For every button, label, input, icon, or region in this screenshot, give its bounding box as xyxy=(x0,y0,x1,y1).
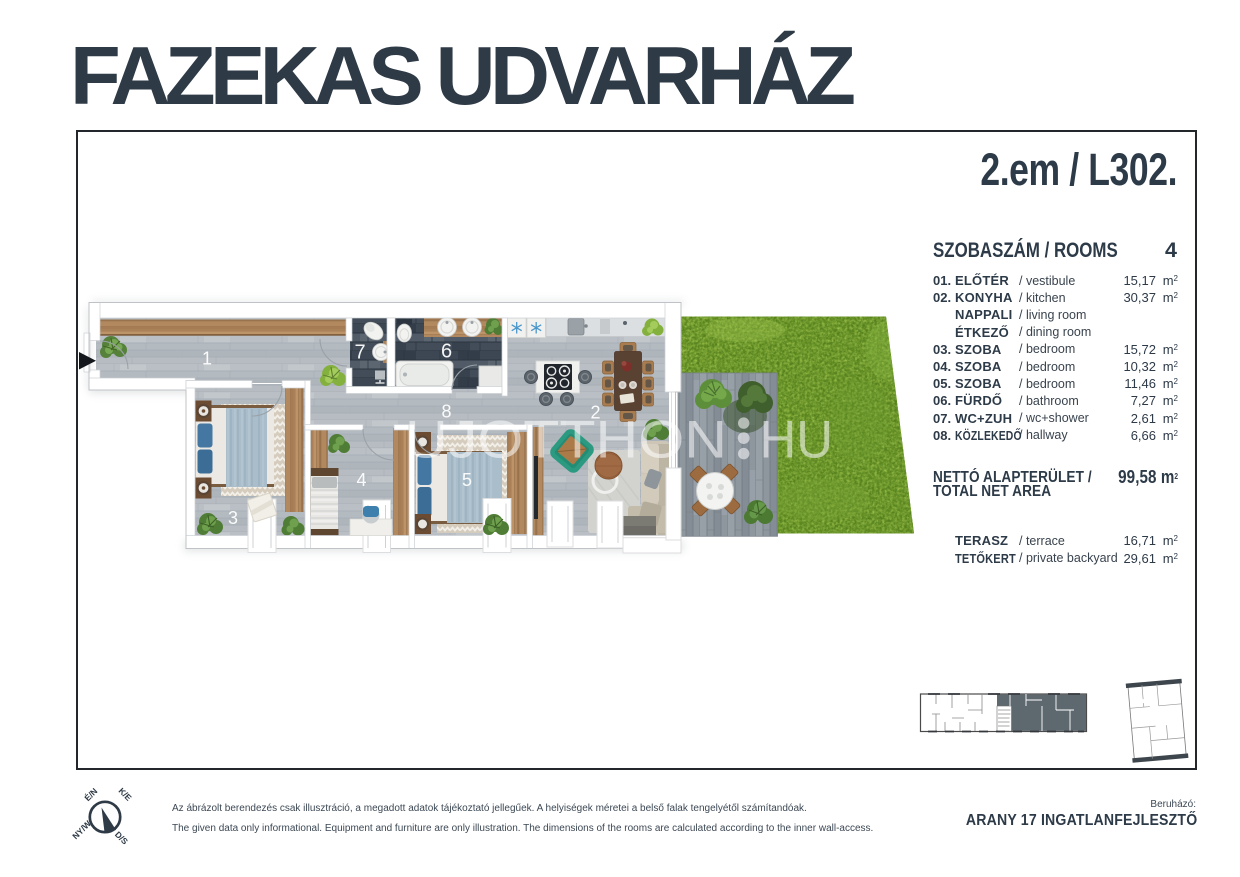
svg-text:5: 5 xyxy=(462,470,472,490)
svg-text:É/N: É/N xyxy=(82,786,99,803)
svg-text:6: 6 xyxy=(441,341,452,363)
svg-text:7: 7 xyxy=(354,342,365,364)
svg-text:HU: HU xyxy=(760,411,834,470)
svg-text:4: 4 xyxy=(356,470,366,490)
svg-text:K/E: K/E xyxy=(117,786,134,803)
svg-text:D/S: D/S xyxy=(113,829,130,846)
svg-text:3: 3 xyxy=(228,508,238,528)
svg-text:1: 1 xyxy=(202,349,212,369)
svg-text:UJOTTHON: UJOTTHON xyxy=(405,411,727,470)
